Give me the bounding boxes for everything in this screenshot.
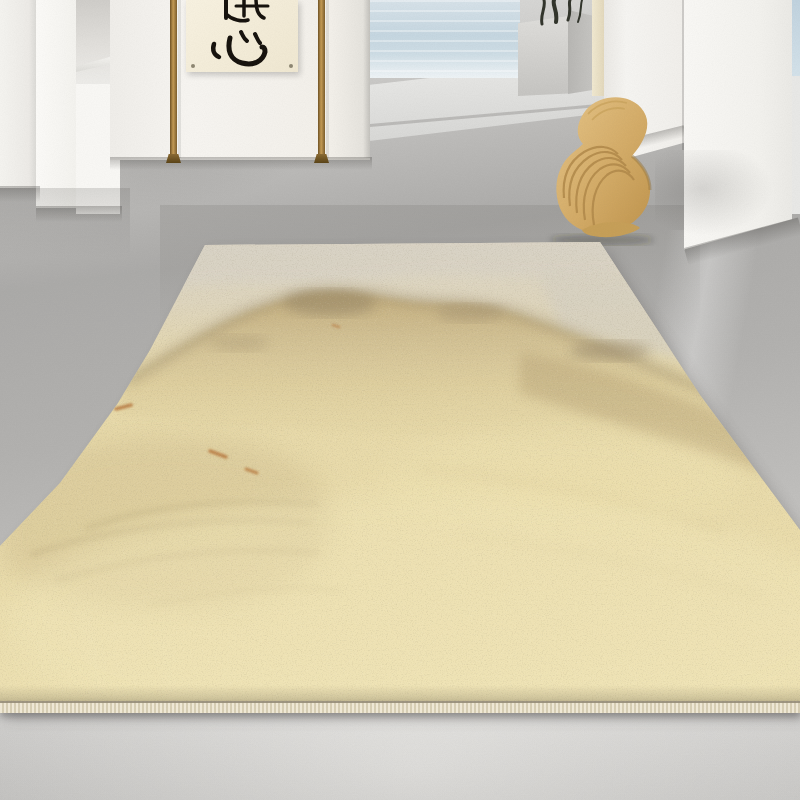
wall-corner-shade xyxy=(363,0,370,158)
wall-panel-left-2 xyxy=(36,0,76,208)
dry-branches xyxy=(526,0,596,26)
rug-binding xyxy=(0,701,800,713)
wood-pole-left xyxy=(170,0,177,160)
area-rug xyxy=(0,233,800,733)
pole-shadow xyxy=(326,0,329,158)
calligraphy-strokes xyxy=(186,0,298,72)
scroll-grommet-left xyxy=(191,64,195,68)
wall-panel-left xyxy=(0,0,36,188)
concrete-planter xyxy=(518,16,568,96)
wall-contact-shadow xyxy=(110,157,372,170)
scroll-grommet-right xyxy=(289,64,293,68)
hanging-scroll: 隨心 xyxy=(186,0,298,72)
wood-pole-right xyxy=(318,0,325,160)
pole-shadow xyxy=(178,0,181,158)
sea-view xyxy=(368,0,520,78)
rug-pattern xyxy=(0,233,800,733)
room-scene: 隨心 xyxy=(0,0,800,800)
cream-pillar xyxy=(592,0,606,96)
sea-sliver-right xyxy=(792,0,800,76)
bentwood-chair xyxy=(528,94,676,246)
